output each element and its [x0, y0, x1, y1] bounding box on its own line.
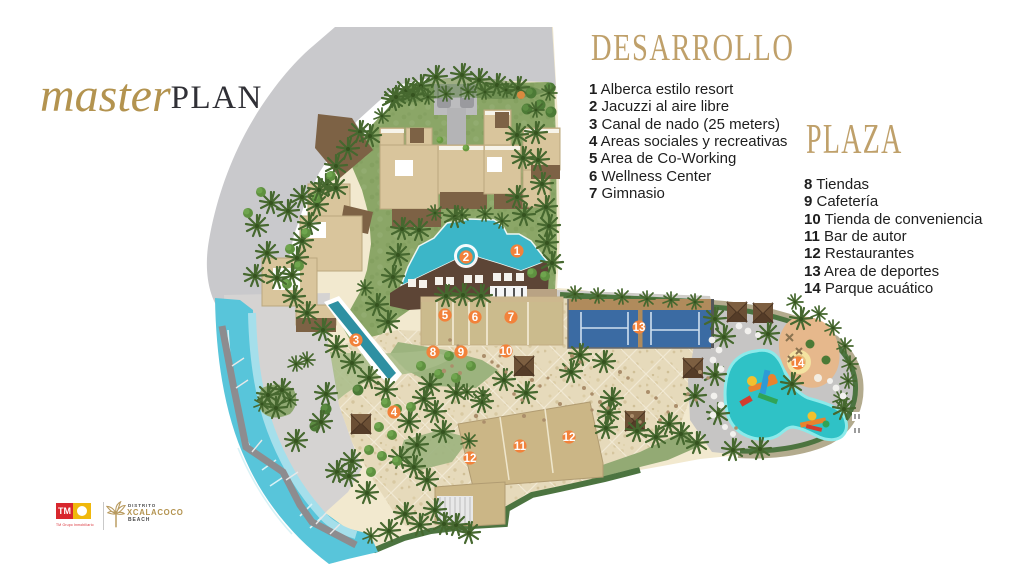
svg-text:5: 5	[442, 310, 449, 322]
svg-text:14: 14	[792, 358, 805, 370]
svg-text:8: 8	[430, 347, 437, 359]
svg-text:10: 10	[500, 346, 513, 358]
svg-text:11: 11	[514, 441, 527, 453]
svg-text:2: 2	[463, 252, 469, 264]
svg-text:9: 9	[458, 347, 464, 359]
svg-text:12: 12	[464, 453, 477, 465]
svg-text:6: 6	[472, 312, 478, 324]
svg-text:4: 4	[391, 407, 398, 419]
svg-text:13: 13	[633, 322, 646, 334]
svg-text:12: 12	[563, 432, 576, 444]
svg-text:3: 3	[353, 335, 359, 347]
svg-text:7: 7	[508, 312, 514, 324]
svg-text:1: 1	[514, 246, 521, 258]
